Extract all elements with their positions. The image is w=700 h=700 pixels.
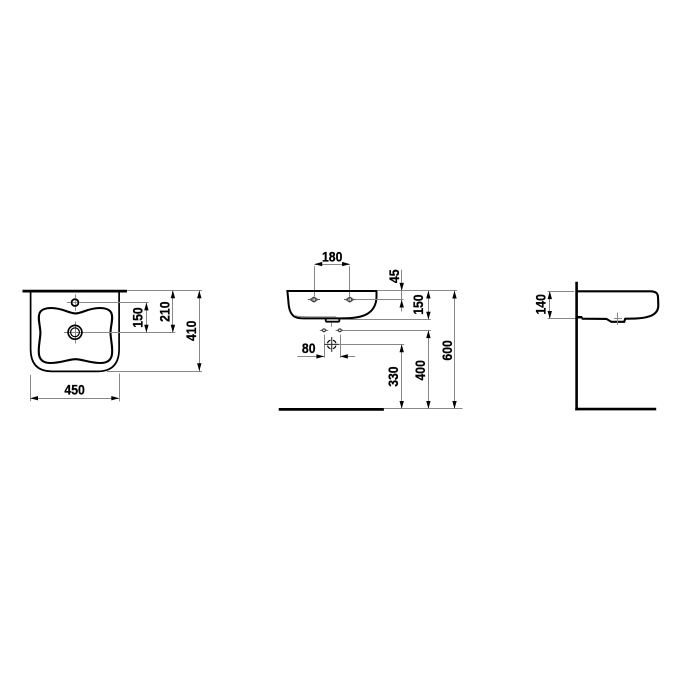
svg-text:600: 600: [439, 340, 455, 361]
svg-text:140: 140: [532, 294, 548, 315]
svg-text:210: 210: [156, 301, 172, 322]
svg-text:330: 330: [385, 366, 401, 387]
svg-text:180: 180: [322, 248, 343, 264]
svg-text:150: 150: [410, 294, 426, 315]
svg-text:45: 45: [386, 269, 402, 283]
svg-text:410: 410: [183, 320, 199, 341]
svg-text:150: 150: [130, 307, 146, 328]
svg-text:80: 80: [302, 340, 316, 356]
svg-text:400: 400: [412, 360, 428, 381]
svg-text:450: 450: [64, 381, 85, 397]
